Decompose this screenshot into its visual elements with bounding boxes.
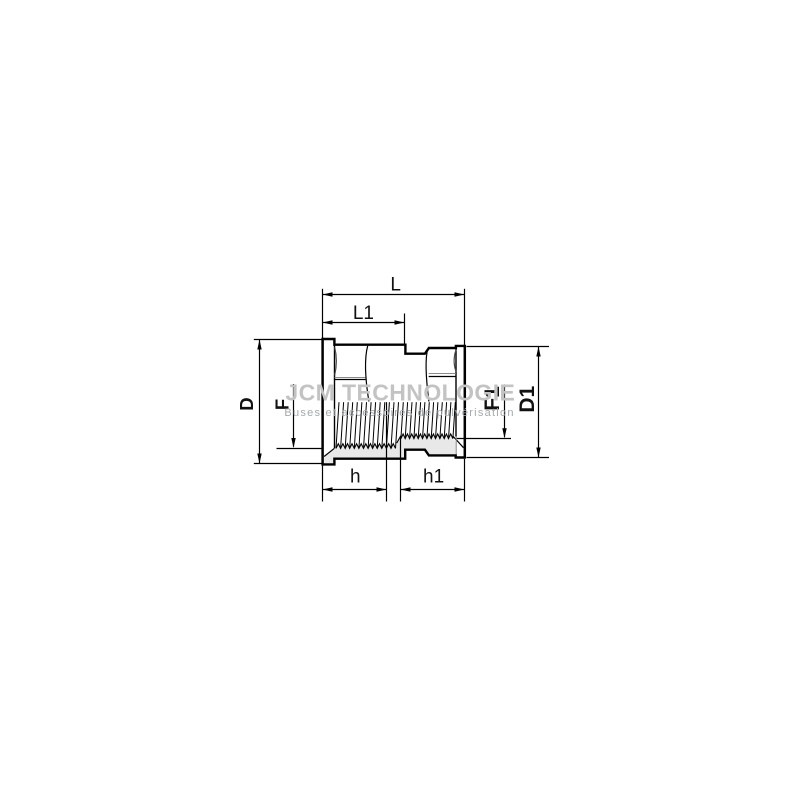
svg-text:h: h [350,466,361,487]
svg-text:Buses et accessoires de pulvér: Buses et accessoires de pulvérisation [284,407,514,419]
svg-text:JCM TECHNOLOGIE: JCM TECHNOLOGIE [285,380,515,406]
svg-text:L1: L1 [353,303,374,324]
svg-text:D: D [236,397,257,410]
svg-text:L: L [390,275,401,296]
svg-text:D1: D1 [516,385,539,412]
svg-text:h1: h1 [423,466,444,487]
